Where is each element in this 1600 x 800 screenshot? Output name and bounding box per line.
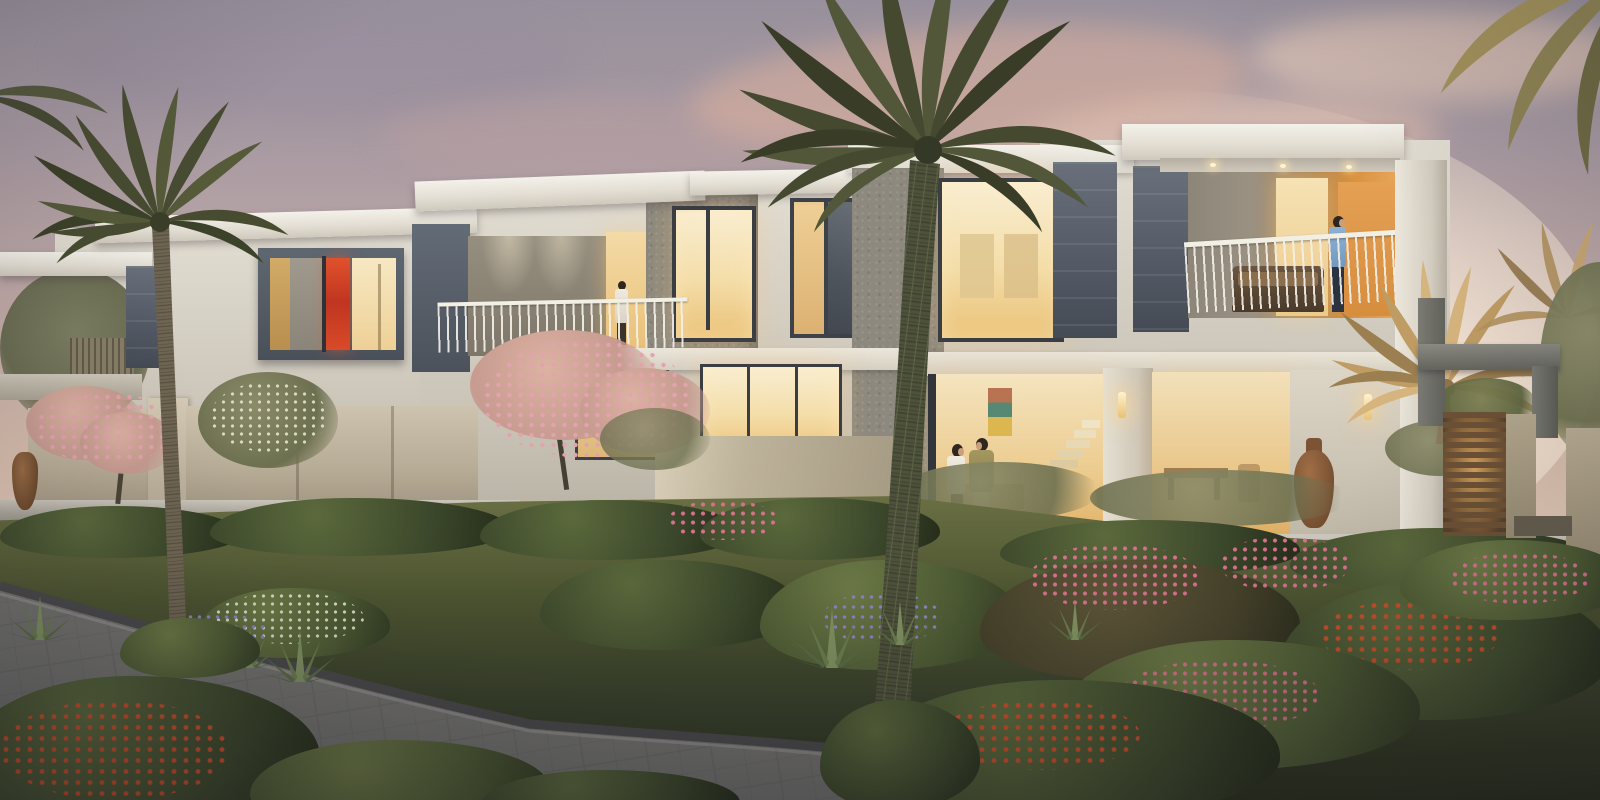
vignette [0, 0, 1600, 800]
rendering-canvas [0, 0, 1600, 800]
